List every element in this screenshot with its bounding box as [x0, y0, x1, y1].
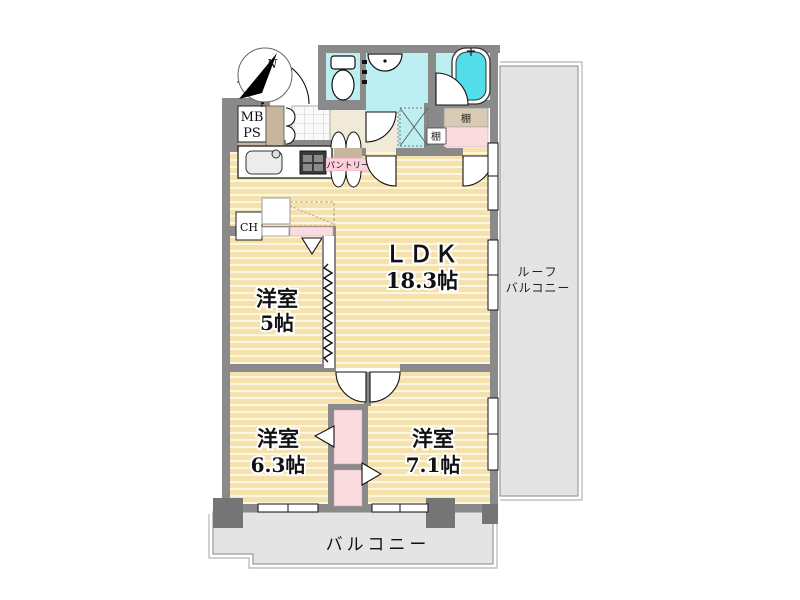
kitchen-faucet	[272, 150, 280, 158]
roof-balcony-label-line2: バルコニー	[506, 281, 571, 295]
roof-balcony: ルーフ バルコニー	[500, 62, 582, 500]
stove-burner-2	[314, 155, 323, 162]
refrigerator-space	[262, 198, 290, 224]
bedroom63-size: 6.3帖	[251, 453, 306, 477]
wall-left-outer	[222, 98, 230, 512]
ps-label: PS	[243, 126, 261, 141]
shelf-lower-label: 棚	[431, 130, 441, 143]
closet-by-bath	[444, 127, 488, 147]
bedroom71-name: 洋室	[412, 426, 454, 451]
toilet	[331, 56, 355, 100]
ch-label: CH	[240, 221, 258, 234]
wall-washroom-bath	[428, 45, 436, 108]
compass-north-label: N	[266, 57, 278, 71]
kitchen	[238, 146, 332, 178]
mb-label: MB	[241, 110, 264, 125]
roof-balcony-label-line1: ルーフ	[517, 265, 558, 279]
stove-burner-4	[314, 164, 323, 171]
counter-pink-inset	[290, 227, 333, 236]
bedroom5-name: 洋室	[256, 286, 298, 311]
towel-bar-tick3	[362, 80, 367, 84]
wall-ldk-bedrooms-right	[400, 364, 498, 372]
balcony-label: バルコニー	[326, 535, 431, 555]
accordion-divider	[322, 236, 336, 368]
compass: N	[238, 48, 292, 102]
pantry-label: パントリー	[327, 161, 370, 171]
wall-toilet-bottom	[318, 100, 366, 110]
toilet-bowl	[332, 70, 354, 100]
shoe-cabinet	[266, 106, 284, 146]
closet-lower	[334, 470, 362, 506]
ldk-size: 18.3帖	[386, 268, 458, 293]
bedroom5-size: 5帖	[260, 311, 294, 335]
counter-white-inset	[262, 227, 289, 236]
floorplan-svg: ルーフ バルコニー バルコニー	[0, 0, 800, 600]
towel-bar-tick1	[362, 60, 367, 64]
ldk-name: ＬＤＫ	[385, 241, 460, 268]
pillar-bottom-mid	[426, 498, 455, 528]
bedroom63-name: 洋室	[257, 426, 299, 451]
towel-bar-tick2	[362, 70, 367, 74]
toilet-tank	[331, 56, 355, 69]
wall-sanitary-left	[318, 45, 326, 108]
stove-burner-1	[303, 155, 312, 162]
shelf-upper-label: 棚	[461, 112, 471, 125]
closet-upper	[334, 410, 362, 464]
pillar-bottom-left	[213, 498, 243, 528]
pantry-step	[334, 148, 362, 158]
floorplan-canvas: ルーフ バルコニー バルコニー	[0, 0, 800, 600]
stove-burner-3	[303, 164, 312, 171]
pillar-bottom-right	[482, 504, 498, 524]
wall-hall-ldk	[396, 148, 463, 156]
bedroom71-size: 7.1帖	[406, 453, 461, 477]
wall-ldk-bedrooms-left	[222, 364, 336, 372]
washbasin-faucet	[383, 59, 386, 62]
